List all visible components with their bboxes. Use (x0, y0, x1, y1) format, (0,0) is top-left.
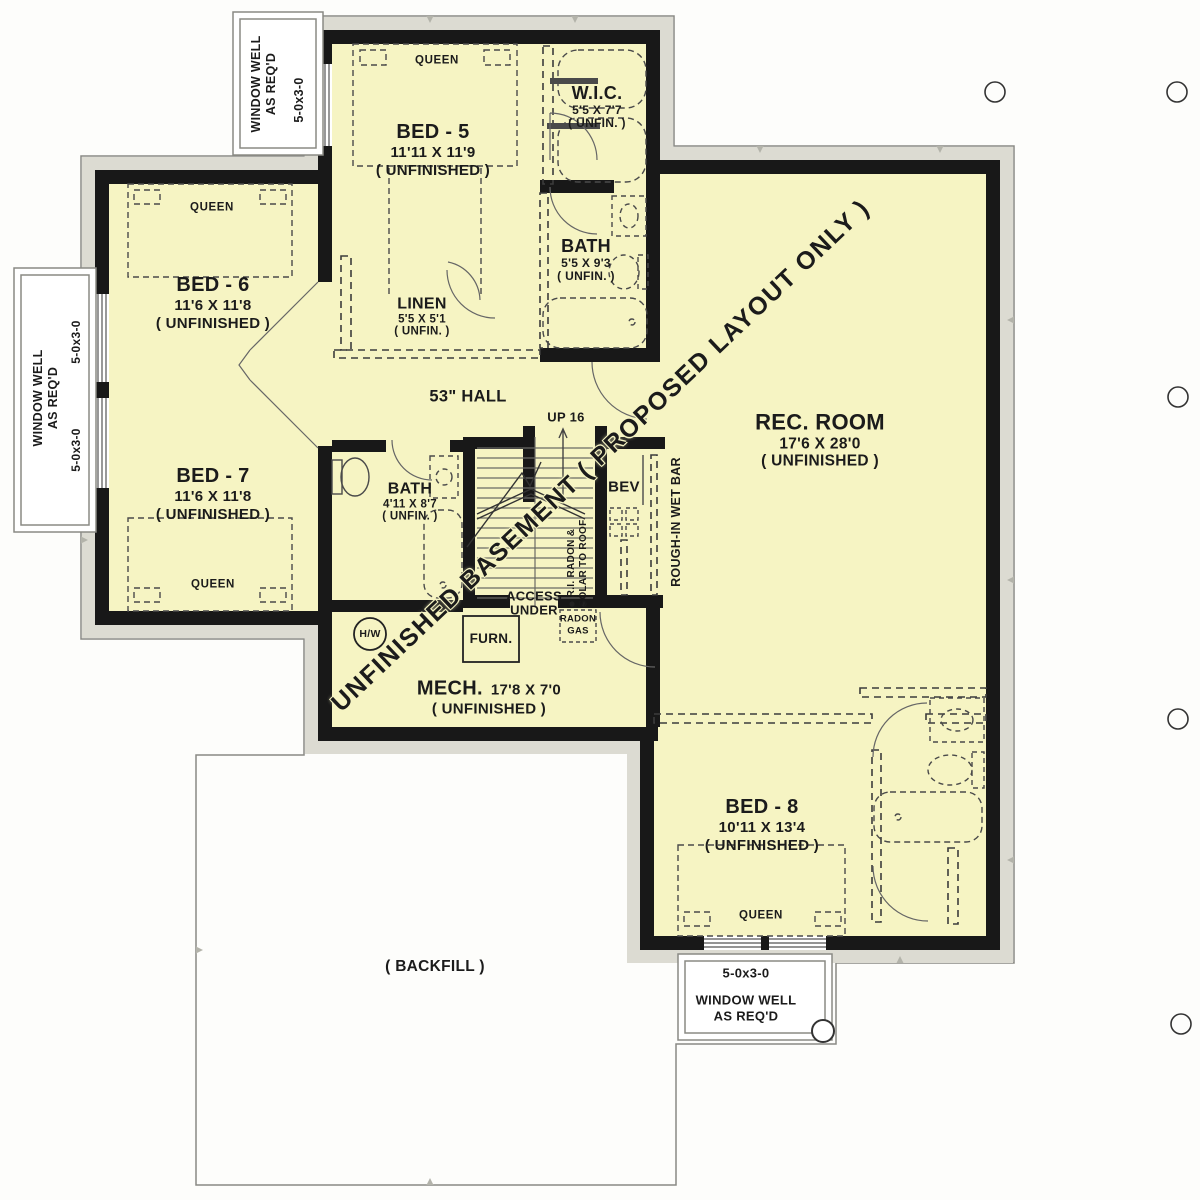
window-well-left-size1: 5-0x3-0 (70, 320, 84, 363)
room-status: ( UNFIN. ) (568, 117, 626, 130)
floor-plan-drawing (0, 0, 1200, 1200)
backfill-label: ( BACKFILL ) (385, 958, 485, 976)
room-dims: 5'5 X 7'7 (568, 104, 626, 117)
room-name: BED - 8 (705, 796, 819, 819)
room-label-bed5: BED - 5 11'11 X 11'9 ( UNFINISHED ) (376, 121, 490, 179)
window-well-top-size: 5-0x3-0 (292, 77, 307, 122)
room-name: REC. ROOM (755, 409, 885, 435)
room-name: BED - 6 (156, 274, 270, 297)
room-dims: 17'8 X 7'0 (491, 682, 561, 699)
room-status: ( UNFIN. ) (394, 326, 449, 339)
floor-plan: UNFINISHED BASEMENT ( PROPOSED LAYOUT ON… (0, 0, 1200, 1200)
room-name: BATH (557, 237, 615, 257)
furnace-label: FURN. (470, 631, 513, 647)
room-dims: 5'5 X 9'3 (557, 257, 615, 270)
room-dims: 5'5 X 5'1 (394, 313, 449, 326)
room-status: ( UNFINISHED ) (755, 453, 885, 471)
window-well-bottom-label: WINDOW WELL AS REQ'D (696, 992, 797, 1023)
room-status: ( UNFINISHED ) (705, 837, 819, 854)
room-name: W.I.C. (568, 84, 626, 104)
room-dims: 4'11 X 8'7 (382, 498, 437, 511)
room-status: ( UNFINISHED ) (417, 701, 561, 718)
room-name: MECH. (417, 678, 483, 700)
room-dims: 10'11 X 13'4 (705, 819, 819, 836)
queen-label-bed7: QUEEN (191, 578, 235, 591)
room-status: ( UNFINISHED ) (156, 315, 270, 332)
hall-label: 53" HALL (429, 387, 506, 406)
stairs-up-label: UP 16 (547, 409, 584, 424)
room-label-bath-lower: BATH 4'11 X 8'7 ( UNFIN. ) (382, 481, 437, 524)
queen-label-bed8: QUEEN (739, 909, 783, 922)
window-well-top-label: WINDOW WELL AS REQ'D (249, 35, 279, 132)
room-label-bed7: BED - 7 11'6 X 11'8 ( UNFINISHED ) (156, 465, 270, 523)
room-name: BED - 7 (156, 465, 270, 488)
window-well-left-size2: 5-0x3-0 (70, 428, 84, 471)
window-bed8 (704, 936, 826, 950)
queen-label-bed6: QUEEN (190, 201, 234, 214)
room-dims: 11'11 X 11'9 (376, 144, 490, 161)
room-label-wic: W.I.C. 5'5 X 7'7 ( UNFIN. ) (568, 84, 626, 130)
queen-label-bed5: QUEEN (415, 54, 459, 67)
window-bed6 (95, 294, 109, 382)
bev-label: BEV (608, 478, 640, 495)
room-status: ( UNFINISHED ) (156, 506, 270, 523)
room-dims: 17'6 X 28'0 (755, 435, 885, 453)
room-label-mech: MECH.17'8 X 7'0 ( UNFINISHED ) (417, 678, 561, 719)
window-bed7 (95, 398, 109, 488)
radon-gas-label: RADON GAS (560, 614, 596, 639)
room-status: ( UNFIN. ) (557, 270, 615, 283)
room-status: ( UNFIN. ) (382, 511, 437, 524)
room-label-bed8: BED - 8 10'11 X 13'4 ( UNFINISHED ) (705, 796, 819, 854)
room-dims: 11'6 X 11'8 (156, 488, 270, 505)
room-name: BATH (382, 481, 437, 499)
room-dims: 11'6 X 11'8 (156, 297, 270, 314)
room-label-linen: LINEN 5'5 X 5'1 ( UNFIN. ) (394, 296, 449, 339)
room-name: BED - 5 (376, 121, 490, 144)
grade-circles (985, 82, 1191, 1034)
window-well-bottom-size: 5-0x3-0 (723, 965, 770, 980)
room-label-bed6: BED - 6 11'6 X 11'8 ( UNFINISHED ) (156, 274, 270, 332)
window-well-left-label: WINDOW WELL AS REQ'D (31, 349, 61, 446)
access-under-label: ACCESS UNDER (506, 590, 562, 619)
room-label-bath-upper: BATH 5'5 X 9'3 ( UNFIN. ) (557, 237, 615, 283)
room-status: ( UNFINISHED ) (376, 162, 490, 179)
room-label-rec: REC. ROOM 17'6 X 28'0 ( UNFINISHED ) (755, 409, 885, 470)
radon-solar-label: R.I. RADON & SOLAR TO ROOF (566, 519, 590, 606)
water-heater-label: H/W (359, 628, 380, 640)
room-name: LINEN (394, 296, 449, 314)
wet-bar-label: ROUGH-IN WET BAR (669, 457, 684, 587)
